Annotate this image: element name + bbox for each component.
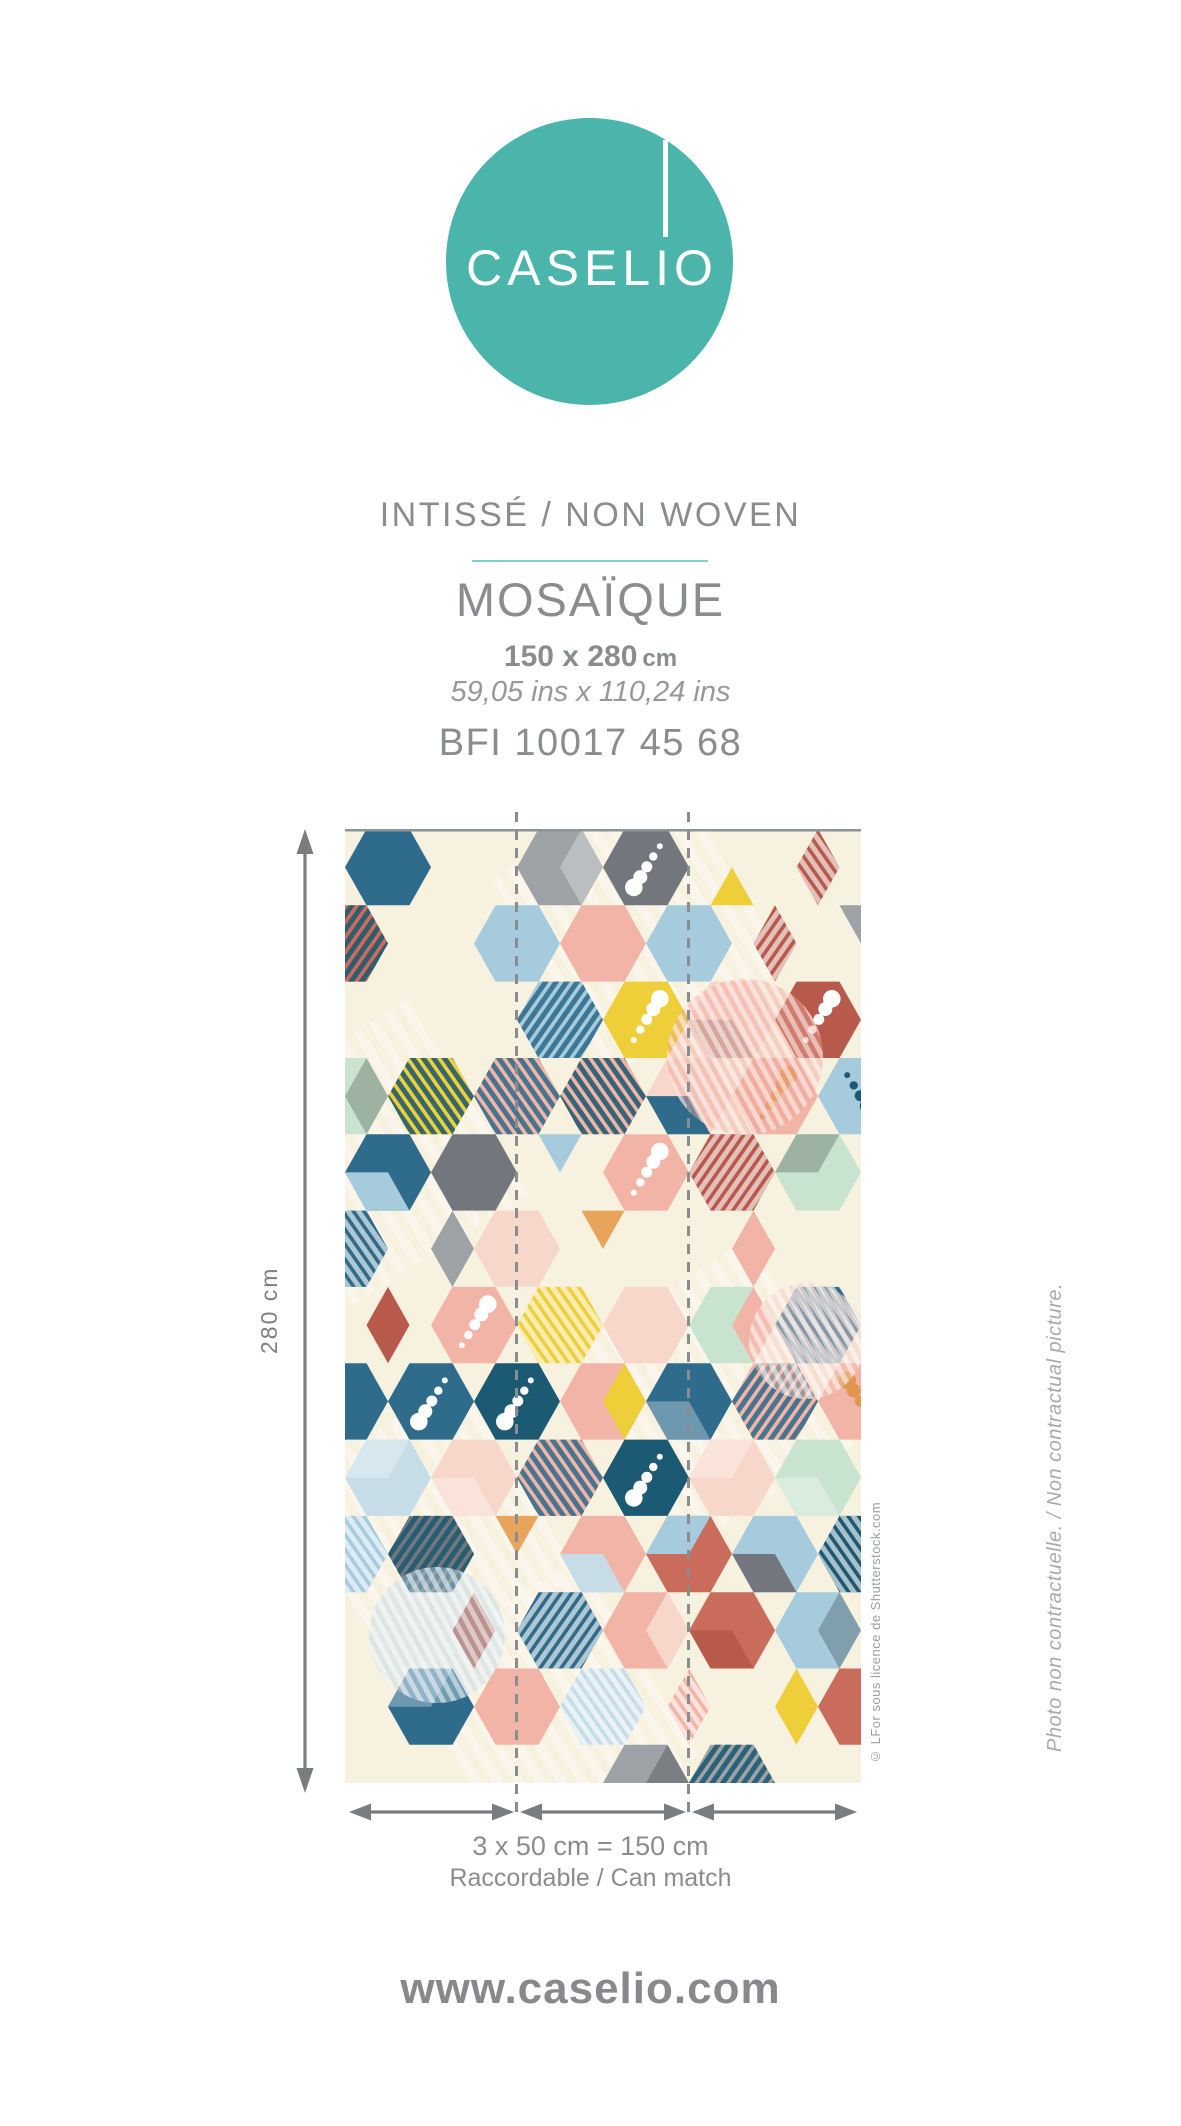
arrow-up-icon [297, 829, 314, 854]
panel-divider-line-1 [515, 812, 518, 1820]
teal-divider [472, 560, 708, 562]
size-cm-value: 150 x 280 [504, 640, 637, 673]
material-label: INTISSÉ / NON WOVEN [0, 496, 1181, 535]
panel-divider-line-2 [687, 812, 690, 1820]
disclaimer-note: Photo non contractuelle. / Non contractu… [1044, 1172, 1070, 1752]
product-sheet: CASELIO INTISSÉ / NON WOVEN MOSAÏQUE 150… [0, 0, 1181, 2126]
website-url: www.caselio.com [0, 1964, 1181, 2014]
width-dimension-label: 3 x 50 cm = 150 cm [0, 1831, 1181, 1862]
height-dimension-label: 280 cm [256, 1243, 284, 1377]
product-reference: BFI 10017 45 68 [0, 722, 1181, 765]
logo-wordmark: CASELIO [446, 242, 733, 294]
arrow-down-icon [297, 1768, 314, 1793]
photo-credit: © LFor sous licence de Shutterstock.com [868, 1408, 888, 1764]
mosaic-pattern [345, 829, 861, 1783]
size-inches: 59,05 ins x 110,24 ins [0, 676, 1181, 709]
logo-i-line [663, 140, 668, 237]
size-cm-unit: cm [642, 645, 677, 672]
height-arrow [294, 827, 316, 1795]
product-name: MOSAÏQUE [0, 572, 1181, 627]
match-label: Raccordable / Can match [0, 1864, 1181, 1893]
size-cm: 150 x 280cm [0, 640, 1181, 674]
width-arrows [345, 1797, 861, 1827]
